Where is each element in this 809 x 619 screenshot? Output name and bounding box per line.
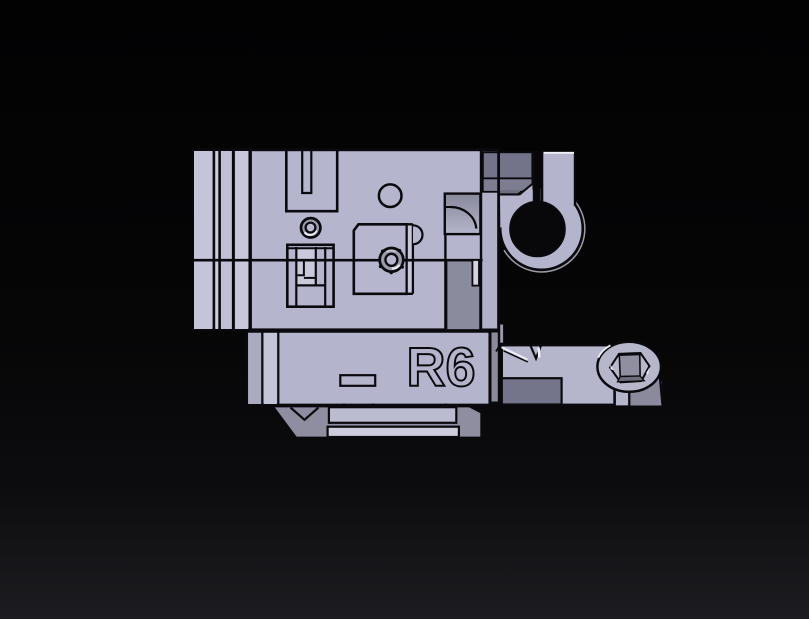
- svg-text:R6: R6: [407, 336, 476, 398]
